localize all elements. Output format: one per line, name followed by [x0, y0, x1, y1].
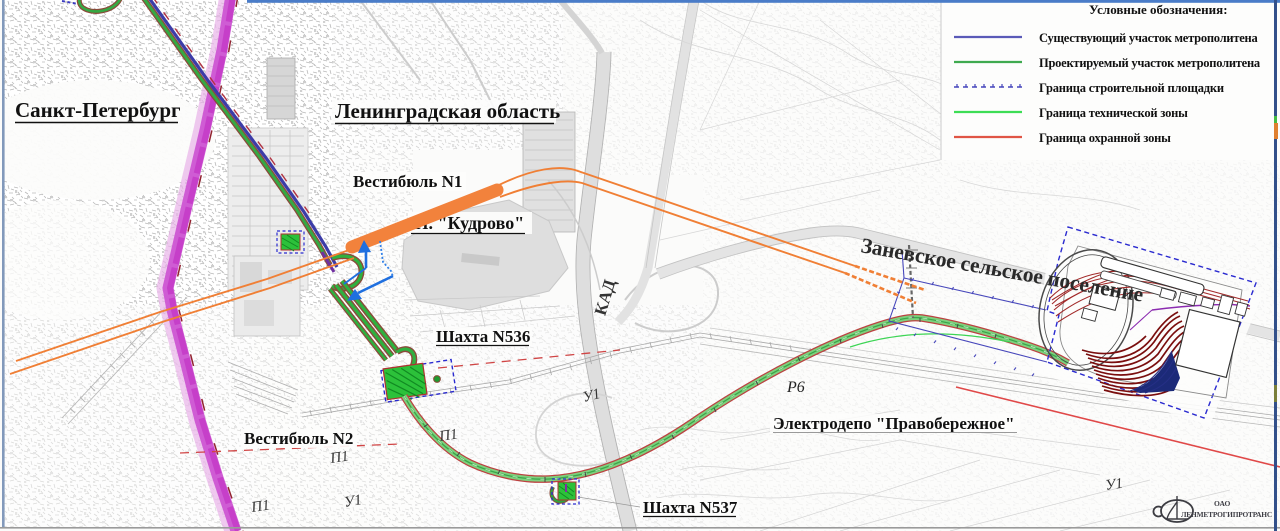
svg-text:ОАО: ОАО	[1214, 499, 1231, 508]
svg-text:Граница охранной зоны: Граница охранной зоны	[1039, 131, 1171, 145]
svg-text:Существующий участок метрополи: Существующий участок метрополитена	[1039, 31, 1258, 45]
svg-text:Шахта N536: Шахта N536	[436, 327, 530, 346]
svg-text:П1: П1	[249, 498, 270, 517]
svg-text:Шахта N537: Шахта N537	[643, 498, 738, 517]
svg-text:Граница строительной площадки: Граница строительной площадки	[1039, 81, 1224, 95]
svg-text:Условные обозначения:: Условные обозначения:	[1089, 2, 1228, 17]
svg-text:Р6: Р6	[786, 379, 805, 396]
svg-text:Проектируемый участок метропол: Проектируемый участок метрополитена	[1039, 56, 1261, 70]
svg-text:Вестибюль N1: Вестибюль N1	[353, 172, 462, 191]
svg-text:У1: У1	[1104, 476, 1124, 494]
svg-text:П1: П1	[328, 449, 349, 468]
svg-text:Граница технической зоны: Граница технической зоны	[1039, 106, 1188, 120]
svg-text:У1: У1	[343, 492, 363, 511]
svg-text:ЛЕНМЕТРОГИПРОТРАНС: ЛЕНМЕТРОГИПРОТРАНС	[1181, 510, 1272, 519]
svg-text:П1: П1	[437, 427, 458, 446]
svg-text:Санкт-Петербург: Санкт-Петербург	[15, 98, 181, 122]
svg-text:Электродепо "Правобережное": Электродепо "Правобережное"	[773, 414, 1015, 433]
svg-text:Вестибюль N2: Вестибюль N2	[244, 429, 353, 448]
svg-text:Ленинградская область: Ленинградская область	[335, 99, 560, 123]
